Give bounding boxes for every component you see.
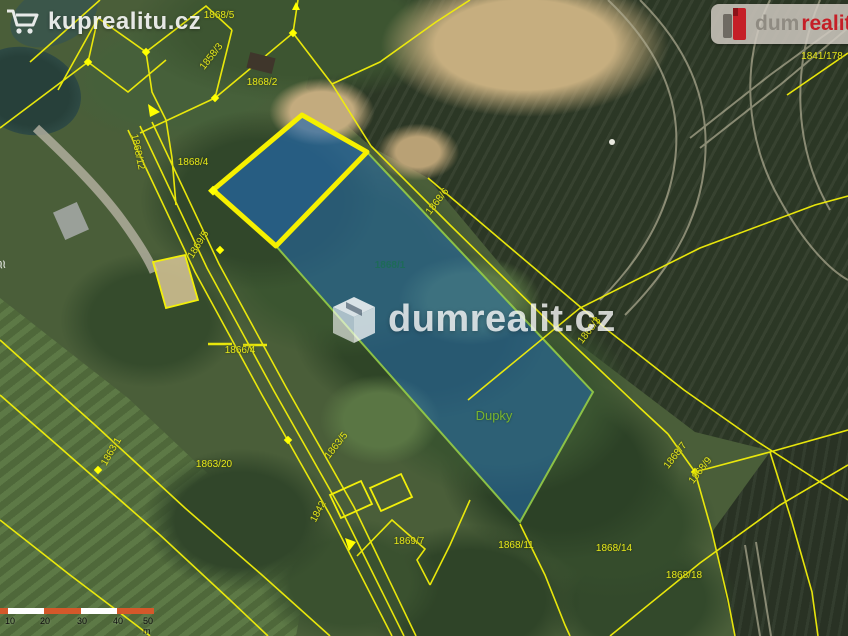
- parcel-label: 1868/5: [204, 11, 235, 21]
- place-name-label: Dupky: [476, 411, 513, 421]
- scale-tick: 40: [113, 616, 123, 626]
- logo-text-realit: realit: [801, 12, 848, 36]
- scale-bar-segments: [0, 608, 154, 614]
- watermark-text: kuprealitu.cz: [48, 8, 201, 36]
- vehicle-dot: [609, 139, 615, 145]
- dumrealit-logo: dum realit: [711, 4, 848, 44]
- kuprealitu-watermark: kuprealitu.cz: [6, 8, 201, 36]
- parcel-label: 1869/7: [394, 537, 425, 547]
- field-tracks: [600, 0, 848, 636]
- parcel-label: 1866/4: [225, 346, 256, 356]
- map-scale-bar: 10 20 30 40 50 m: [0, 608, 170, 634]
- parcel-label: 1868/1: [375, 261, 406, 271]
- parcel-label: 1868/4: [178, 158, 209, 168]
- parcel-label: 1841/178: [801, 52, 843, 62]
- roof: [246, 52, 275, 74]
- parcel-label: 1868/2: [247, 78, 278, 88]
- parcel-label: 1868/11: [498, 541, 533, 551]
- watermark-text: dumrealit.cz: [388, 298, 616, 341]
- house-box-icon: [330, 294, 378, 344]
- scale-tick: 10: [5, 616, 15, 626]
- parcel-label: 1863/20: [196, 460, 232, 470]
- shopping-cart-icon: [6, 8, 40, 36]
- parcel-label: 1868/18: [666, 571, 702, 581]
- scale-tick: 20: [40, 616, 50, 626]
- dumrealit-logo-icon: [723, 8, 749, 40]
- logo-text-dum: dum: [755, 12, 799, 36]
- scale-tick: 30: [77, 616, 87, 626]
- parcel-label: 1868/14: [596, 544, 632, 554]
- aerial-cadastral-map[interactable]: 1868/5 1858/3 1868/2 1841/178 1868/12 18…: [0, 0, 848, 636]
- dumrealit-watermark: dumrealit.cz: [330, 294, 616, 344]
- weir-structure: [53, 202, 89, 240]
- scale-tick: 50 m: [143, 616, 161, 636]
